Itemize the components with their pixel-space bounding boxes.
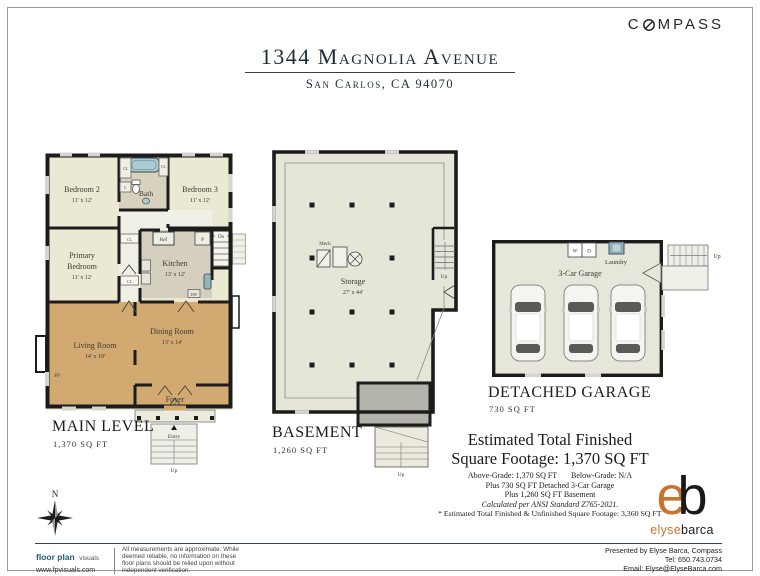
kitchen-label: Kitchen bbox=[162, 259, 187, 268]
closet-label: CL bbox=[127, 279, 133, 284]
eb-name-first: elyse bbox=[650, 523, 681, 537]
eb-name-last: barca bbox=[681, 523, 714, 537]
summary-ansi-line: Calculated per ANSI Standard Z765-2021. bbox=[438, 500, 662, 510]
bedroom3-dims: 11' x 12' bbox=[190, 198, 210, 204]
below-grade: Below-Grade: N/A bbox=[571, 471, 632, 480]
floor-plan-visuals-block: floor plan visuals www.fpvisuals.com 415… bbox=[36, 547, 250, 576]
title-block: 1344 Magnolia Avenue San Carlos, CA 9407… bbox=[190, 44, 570, 92]
ref-label: Ref bbox=[160, 238, 168, 243]
living-label: Living Room bbox=[74, 341, 118, 350]
primary-label-1: Primary bbox=[69, 251, 95, 260]
floor-plan-flyer: C MPASS 1344 Magnolia Avenue San Carlos,… bbox=[0, 0, 760, 576]
entry-label: Entry bbox=[168, 434, 180, 440]
storage-dims: 27' x 44' bbox=[343, 290, 363, 296]
garage-up-label: Up bbox=[713, 254, 720, 260]
fpv-brand-suffix: visuals bbox=[79, 555, 99, 562]
garage-sqft: 730 SQ FT bbox=[489, 404, 536, 414]
summary-line1: Estimated Total Finished bbox=[438, 430, 662, 449]
fpv-disclaimer: All measurements are approximate. While … bbox=[122, 547, 250, 576]
presented-by: Presented by Elyse Barca, Compass bbox=[605, 546, 722, 555]
dn-label: Dn bbox=[218, 235, 225, 240]
summary-basement-line: Plus 1,260 SQ FT Basement bbox=[438, 490, 662, 500]
dryer-label: D bbox=[587, 250, 591, 255]
bedroom2-label: Bedroom 2 bbox=[64, 185, 100, 194]
fireplace-label: FP bbox=[54, 374, 60, 379]
property-city: San Carlos, CA 94070 bbox=[190, 77, 570, 92]
agent-email: Email: Elyse@ElyseBarca.com bbox=[605, 564, 722, 573]
mech-label: Mech bbox=[319, 242, 331, 247]
presented-by-block: Presented by Elyse Barca, Compass Tel: 6… bbox=[605, 546, 722, 573]
compass-logo-suffix: MPASS bbox=[658, 16, 724, 33]
closet-label: CL bbox=[161, 164, 167, 169]
garage-plan: Up W D Laundry 3-Car Garage bbox=[485, 235, 730, 385]
storage-label: Storage bbox=[341, 277, 366, 286]
compass-logo: C MPASS bbox=[628, 16, 724, 33]
above-grade: Above-Grade: 1,370 SQ FT bbox=[468, 471, 557, 480]
basement-up-label: Up bbox=[441, 274, 448, 280]
closet-label: CL bbox=[123, 166, 129, 171]
car-3 bbox=[609, 285, 647, 361]
bedroom2-dims: 11' x 12' bbox=[72, 198, 92, 204]
basement-entry-up-label: Up bbox=[398, 472, 405, 478]
fpv-divider bbox=[114, 548, 115, 574]
laundry-label: Laundry bbox=[605, 259, 628, 266]
bath-label: Bath bbox=[139, 189, 153, 198]
agent-tel: Tel: 650.743.0734 bbox=[605, 555, 722, 564]
fpv-brand: floor plan bbox=[36, 552, 75, 562]
basement-label: BASEMENT bbox=[272, 424, 362, 442]
basement-entry-stairs: Up bbox=[375, 427, 428, 478]
dw-label: DW bbox=[191, 292, 198, 297]
elyse-barca-logo: eb bbox=[640, 470, 724, 522]
main-level-label: MAIN LEVEL bbox=[52, 418, 154, 436]
dining-dims: 13' x 14' bbox=[162, 340, 182, 346]
garage-exterior-stairs: Up bbox=[662, 245, 721, 290]
main-level-sqft: 1,370 SQ FT bbox=[53, 439, 108, 449]
dining-label: Dining Room bbox=[150, 327, 195, 336]
eb-logo-b: b bbox=[678, 466, 708, 526]
kitchen-dims: 13' x 12' bbox=[165, 272, 185, 278]
square-footage-summary: Estimated Total Finished Square Footage:… bbox=[438, 430, 662, 509]
closet-label: CL bbox=[127, 237, 133, 242]
basement-sqft: 1,260 SQ FT bbox=[273, 445, 328, 455]
garage-room-label: 3-Car Garage bbox=[558, 269, 602, 278]
compass-logo-prefix: C bbox=[628, 16, 642, 33]
summary-line2: Square Footage: 1,370 SQ FT bbox=[438, 449, 662, 468]
car-1 bbox=[509, 285, 547, 361]
bedroom3-label: Bedroom 3 bbox=[182, 185, 218, 194]
north-label: N bbox=[52, 489, 59, 499]
primary-label-2: Bedroom bbox=[67, 262, 98, 271]
washer-label: W bbox=[573, 250, 578, 255]
foyer-label: Foyer bbox=[166, 395, 185, 404]
primary-dims: 11' x 12' bbox=[72, 275, 92, 281]
compass-needle-o-icon bbox=[642, 18, 656, 32]
entry-up-label: Up bbox=[171, 468, 178, 474]
car-2 bbox=[562, 285, 600, 361]
property-address: 1344 Magnolia Avenue bbox=[245, 44, 515, 73]
fpv-url: www.fpvisuals.com bbox=[36, 567, 112, 574]
footer-divider-line bbox=[35, 543, 722, 544]
compass-rose: N bbox=[36, 486, 76, 540]
living-dims: 14' x 19' bbox=[85, 354, 105, 360]
summary-garage-line: Plus 730 SQ FT Detached 3-Car Garage bbox=[438, 481, 662, 491]
garage-label: DETACHED GARAGE bbox=[488, 384, 651, 402]
elyse-barca-wordmark: elysebarca bbox=[640, 523, 724, 537]
entry-stairs: Entry Up bbox=[151, 424, 197, 474]
pantry-label: P bbox=[201, 238, 204, 243]
